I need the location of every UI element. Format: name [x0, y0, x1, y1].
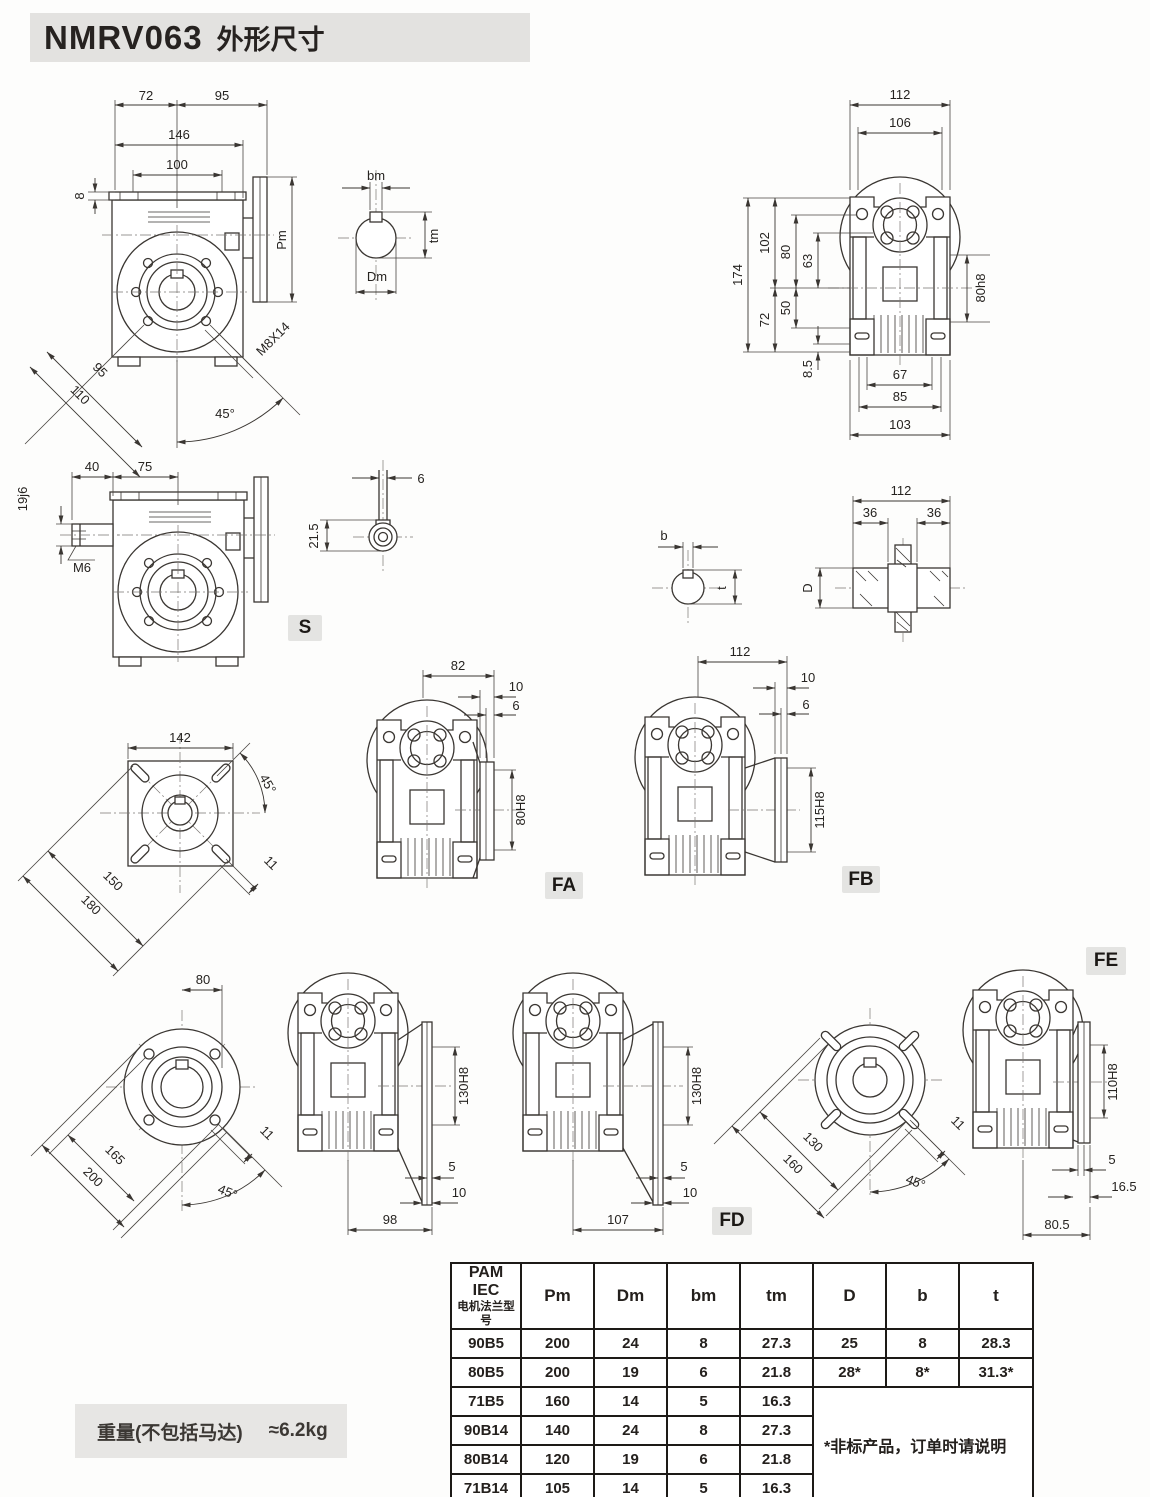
dim-label: 5: [1108, 1152, 1115, 1167]
cell: 120: [521, 1445, 594, 1474]
dim-label: 10: [509, 679, 523, 694]
table-header-row: PAM IEC 电机法兰型号 Pm Dm bm tm D b t: [451, 1263, 1033, 1329]
cell: 28.3: [959, 1329, 1033, 1358]
cell: 200: [521, 1329, 594, 1358]
table-note: *非标产品，订单时请说明: [813, 1387, 1033, 1497]
dim-label: 130: [800, 1129, 826, 1155]
cell: 8: [667, 1329, 740, 1358]
cell: 24: [594, 1329, 667, 1358]
dim-label: 10: [683, 1185, 697, 1200]
cell: 31.3*: [959, 1358, 1033, 1387]
dim-label: 40: [85, 459, 99, 474]
s-version-drawing: 40 75 19j6 M6: [15, 459, 275, 666]
dim-label: 165: [102, 1142, 128, 1168]
badge-fb: FB: [842, 866, 880, 893]
dim-label: 80.5: [1044, 1217, 1069, 1232]
cell: 80B14: [451, 1445, 521, 1474]
dim-label: 103: [889, 417, 911, 432]
dim-label: 180: [78, 892, 104, 918]
cell: 14: [594, 1474, 667, 1497]
badge-fe-label: FE: [1094, 950, 1118, 972]
dim-label: 80: [196, 972, 210, 987]
cell: 25: [813, 1329, 886, 1358]
cell: 5: [667, 1387, 740, 1416]
dim-label: 115H8: [812, 791, 827, 828]
hollow-bore-keyway-detail: b t: [652, 528, 742, 626]
dim-label: 11: [261, 853, 281, 873]
dim-label: 11: [257, 1123, 277, 1143]
dim-label: 11: [948, 1113, 968, 1133]
dim-label: 45°: [904, 1171, 928, 1192]
square-flange-drawing: 142 45° 150 180 11: [18, 730, 281, 976]
fe-version-drawing: 110H8 5 16.5 80.5: [963, 970, 1137, 1240]
fb-version-drawing: 112 10 6 115H8: [635, 644, 827, 887]
dim-label: 107: [607, 1212, 629, 1227]
cell: 8*: [886, 1358, 959, 1387]
dim-label: 100: [166, 157, 188, 172]
table-row: 80B5 200 19 6 21.8 28* 8* 31.3*: [451, 1358, 1033, 1387]
dim-label: 36: [863, 505, 877, 520]
header-bm: bm: [667, 1263, 740, 1329]
round-flange-160-drawing: 130 160 11 45°: [714, 1008, 968, 1218]
badge-fd: FD: [712, 1207, 752, 1235]
header-b: b: [886, 1263, 959, 1329]
table-row: 90B5 200 24 8 27.3 25 8 28.3: [451, 1329, 1033, 1358]
round-flange-200-drawing: 80 165 200 11 45°: [31, 972, 282, 1238]
dim-label: 75: [138, 459, 152, 474]
dim-label: 80: [778, 245, 793, 259]
dim-label: 95: [215, 88, 229, 103]
badge-fd-label: FD: [719, 1210, 744, 1232]
dim-label: 150: [100, 868, 126, 894]
cell: 71B5: [451, 1387, 521, 1416]
dim-label: 130H8: [456, 1067, 471, 1105]
dim-label: 110: [68, 382, 93, 407]
dim-label: 50: [778, 301, 793, 315]
dim-label: 36: [927, 505, 941, 520]
cell: 8: [667, 1416, 740, 1445]
dim-label: 142: [169, 730, 191, 745]
rear-view-drawing: 112 106 174 102 80 63 72 50 8.5 80h8: [730, 87, 990, 440]
cell: 5: [667, 1474, 740, 1497]
weight-value: ≈6.2kg: [269, 1420, 328, 1442]
dim-label: 5: [680, 1159, 687, 1174]
dim-label: 98: [383, 1212, 397, 1227]
dim-label: 112: [730, 644, 751, 659]
header-pam-iec: PAM IEC 电机法兰型号: [451, 1263, 521, 1329]
badge-fe: FE: [1086, 947, 1126, 975]
dim-label: 21.5: [306, 523, 321, 548]
dim-label: D: [800, 583, 815, 592]
dim-label: 45°: [216, 1181, 240, 1202]
motor-shaft-hole-detail: bm tm Dm: [338, 168, 441, 302]
dim-label: 45°: [256, 771, 279, 796]
fd-version-drawing-2: 130H8 5 10 107: [513, 973, 704, 1235]
dim-label: b: [660, 528, 667, 543]
dim-label: 6: [417, 471, 424, 486]
weight-label: 重量(不包括马达): [97, 1418, 243, 1445]
cell: 160: [521, 1387, 594, 1416]
cell: 16.3: [740, 1474, 813, 1497]
cell: 80B5: [451, 1358, 521, 1387]
dim-label: 45°: [215, 406, 235, 421]
cell: 140: [521, 1416, 594, 1445]
dim-label: 10: [801, 670, 815, 685]
dim-label: 85: [893, 389, 907, 404]
dim-label: 80H8: [513, 794, 528, 825]
dim-label: 102: [757, 232, 772, 254]
cell: 21.8: [740, 1445, 813, 1474]
flange-spec-table: PAM IEC 电机法兰型号 Pm Dm bm tm D b t 90B5 20…: [450, 1262, 1034, 1497]
cell: 90B5: [451, 1329, 521, 1358]
badge-s-label: S: [299, 617, 312, 639]
dim-label: 8: [72, 192, 87, 199]
dim-label: 80h8: [973, 274, 988, 303]
cell: 71B14: [451, 1474, 521, 1497]
dim-label: Pm: [274, 230, 289, 250]
cell: 19: [594, 1358, 667, 1387]
cell: 16.3: [740, 1387, 813, 1416]
header-tm: tm: [740, 1263, 813, 1329]
dim-label: t: [714, 586, 729, 590]
cell: 19: [594, 1445, 667, 1474]
header-dm: Dm: [594, 1263, 667, 1329]
cell: 6: [667, 1445, 740, 1474]
cell: 27.3: [740, 1329, 813, 1358]
dim-label: 63: [800, 254, 815, 268]
dim-label: 106: [889, 115, 911, 130]
dim-label: 8.5: [800, 360, 815, 378]
dim-label: 10: [452, 1185, 466, 1200]
dim-label: 146: [168, 127, 190, 142]
dim-label: 95: [90, 359, 111, 380]
dim-label: 200: [80, 1164, 106, 1190]
dim-label: 82: [451, 658, 465, 673]
header-pam-iec-line2: 电机法兰型号: [454, 1300, 518, 1328]
catalog-page: NMRV063 外形尺寸: [0, 0, 1150, 1497]
cell: 21.8: [740, 1358, 813, 1387]
dim-label: 112: [890, 87, 911, 102]
header-pm: Pm: [521, 1263, 594, 1329]
dim-label: 72: [757, 313, 772, 327]
header-pam-iec-line1: PAM IEC: [454, 1264, 518, 1300]
dim-label: M8X14: [253, 319, 293, 359]
cell: 90B14: [451, 1416, 521, 1445]
dim-label: 72: [139, 88, 153, 103]
badge-fb-label: FB: [848, 869, 873, 891]
dim-label: 112: [891, 483, 912, 498]
dim-label: M6: [73, 560, 91, 575]
dim-label: 16.5: [1111, 1179, 1136, 1194]
badge-s: S: [288, 615, 322, 641]
dim-label: 174: [730, 264, 745, 286]
badge-fa-label: FA: [552, 875, 576, 897]
dim-label: 5: [448, 1159, 455, 1174]
dim-label: 6: [802, 697, 809, 712]
header-t: t: [959, 1263, 1033, 1329]
fa-version-drawing: 82 10 6 80H8: [367, 658, 528, 890]
cell: 8: [886, 1329, 959, 1358]
dim-label: Dm: [367, 269, 387, 284]
header-d: D: [813, 1263, 886, 1329]
dim-label: 130H8: [689, 1067, 704, 1105]
fd-version-drawing-1: 130H8 5 10 98: [288, 973, 471, 1235]
cell: 28*: [813, 1358, 886, 1387]
cell: 24: [594, 1416, 667, 1445]
dim-label: 110H8: [1105, 1063, 1120, 1100]
cell: 6: [667, 1358, 740, 1387]
dim-label: bm: [367, 168, 385, 183]
cell: 27.3: [740, 1416, 813, 1445]
hollow-shaft-section-drawing: 112 36 36 D: [800, 483, 968, 642]
cell: 105: [521, 1474, 594, 1497]
dim-label: 6: [512, 698, 519, 713]
dim-label: 67: [893, 367, 907, 382]
dim-label: tm: [426, 229, 441, 243]
cell: 200: [521, 1358, 594, 1387]
weight-note: 重量(不包括马达) ≈6.2kg: [75, 1404, 347, 1458]
front-view-drawing: 72 95 146 100 8 Pm 95 110 45° M8X14: [25, 88, 300, 477]
cell: 14: [594, 1387, 667, 1416]
dim-label: 19j6: [15, 487, 30, 512]
s-output-shaft-detail: 6 21.5: [306, 460, 425, 574]
badge-fa: FA: [545, 872, 583, 899]
table-row: 71B5 160 14 5 16.3 *非标产品，订单时请说明: [451, 1387, 1033, 1416]
